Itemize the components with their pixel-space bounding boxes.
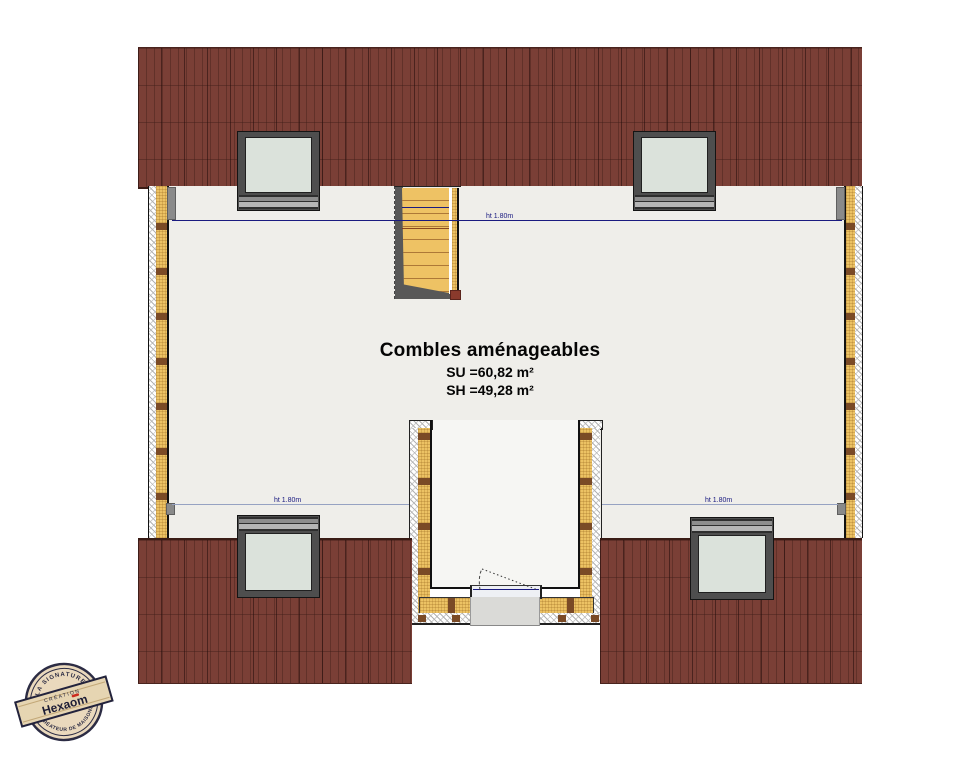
wall-post-top-right bbox=[836, 187, 845, 220]
dormer-sill-line-left bbox=[430, 587, 470, 589]
dormer-stud-4 bbox=[591, 615, 599, 622]
floor-plan-canvas: ht 1.80m ht 1.80m ht 1.80m Combles aména… bbox=[0, 0, 960, 759]
room-label: Combles aménageables SU =60,82 m² SH =49… bbox=[340, 340, 640, 398]
wall-post-bottom-right bbox=[837, 503, 846, 515]
door-swing-arc bbox=[468, 562, 550, 596]
height-line-top-label: ht 1.80m bbox=[484, 213, 515, 220]
room-surface-utile: SU =60,82 m² bbox=[340, 364, 640, 380]
height-line-top bbox=[172, 220, 842, 221]
height-line-bottom-right-label: ht 1.80m bbox=[703, 497, 734, 504]
wall-right bbox=[842, 186, 863, 538]
room-surface-habitable: SH =49,28 m² bbox=[340, 382, 640, 398]
height-line-bottom-right bbox=[601, 504, 838, 505]
dormer-window-sill bbox=[470, 597, 540, 626]
skylight-top-right bbox=[633, 131, 716, 211]
dormer-stud-3 bbox=[558, 615, 566, 622]
staircase-brown-line bbox=[402, 228, 450, 229]
wall-left-hatch bbox=[149, 186, 156, 538]
room-title: Combles aménageables bbox=[340, 340, 640, 362]
staircase-newel-post bbox=[450, 290, 461, 300]
dormer-wall-right-inner-line bbox=[578, 420, 580, 588]
dormer-wall-left bbox=[409, 428, 432, 613]
wall-left-insulation bbox=[156, 186, 169, 538]
wall-right-hatch bbox=[855, 186, 862, 538]
height-line-bottom-left-label: ht 1.80m bbox=[272, 497, 303, 504]
builder-stamp-logo: LA SIGNATURE CRÉATEUR DE MAISONS CRÉATIO… bbox=[6, 646, 122, 758]
staircase-nosing-line bbox=[402, 207, 449, 208]
staircase-treads bbox=[402, 188, 449, 294]
skylight-bottom-left bbox=[237, 515, 320, 598]
staircase-stringer bbox=[452, 188, 459, 294]
dormer-stud-1 bbox=[418, 615, 426, 622]
skylight-top-left bbox=[237, 131, 320, 211]
dormer-wall-left-inner-line bbox=[430, 420, 432, 588]
skylight-bottom-right bbox=[690, 517, 774, 600]
wall-post-top-left bbox=[167, 187, 176, 220]
dormer-wall-right bbox=[578, 428, 602, 613]
dormer-wall-left-insulation bbox=[418, 428, 430, 613]
dormer-wall-right-insulation bbox=[580, 428, 592, 613]
wall-left bbox=[148, 186, 169, 538]
staircase bbox=[394, 186, 461, 299]
dormer-stud-2 bbox=[452, 615, 460, 622]
dormer-wall-right-hatch bbox=[592, 428, 600, 613]
height-line-bottom-left bbox=[172, 504, 410, 505]
